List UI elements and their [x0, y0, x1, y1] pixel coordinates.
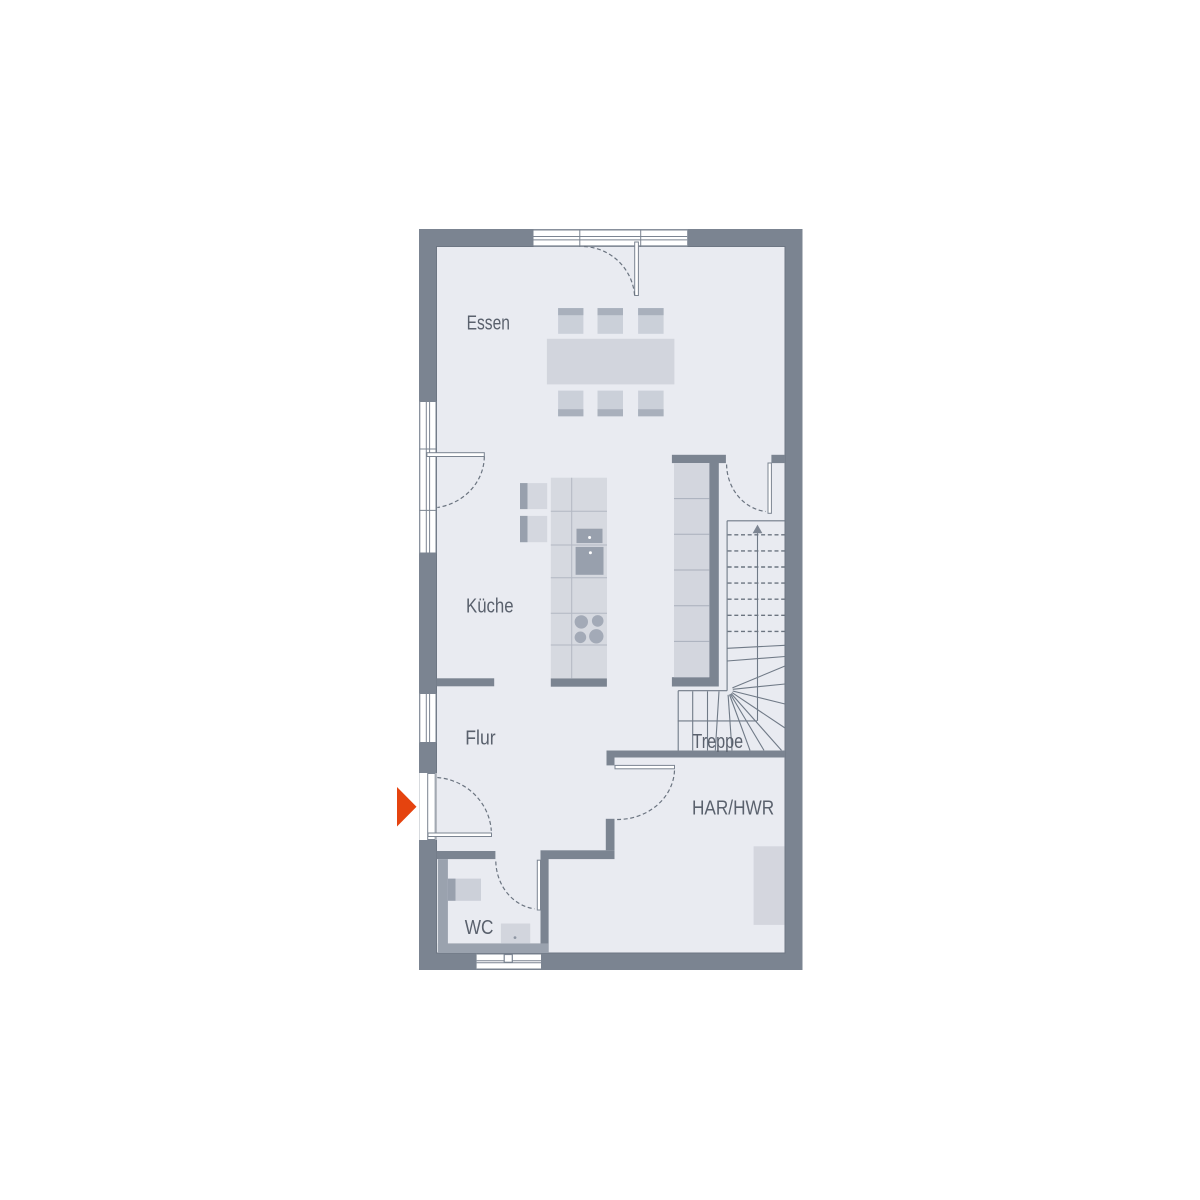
- svg-text:Küche: Küche: [466, 594, 514, 617]
- svg-text:HAR/HWR: HAR/HWR: [692, 796, 774, 819]
- svg-text:WC: WC: [465, 916, 494, 939]
- svg-text:Flur: Flur: [465, 726, 495, 748]
- svg-text:Essen: Essen: [467, 312, 510, 334]
- svg-text:Treppe: Treppe: [692, 730, 743, 752]
